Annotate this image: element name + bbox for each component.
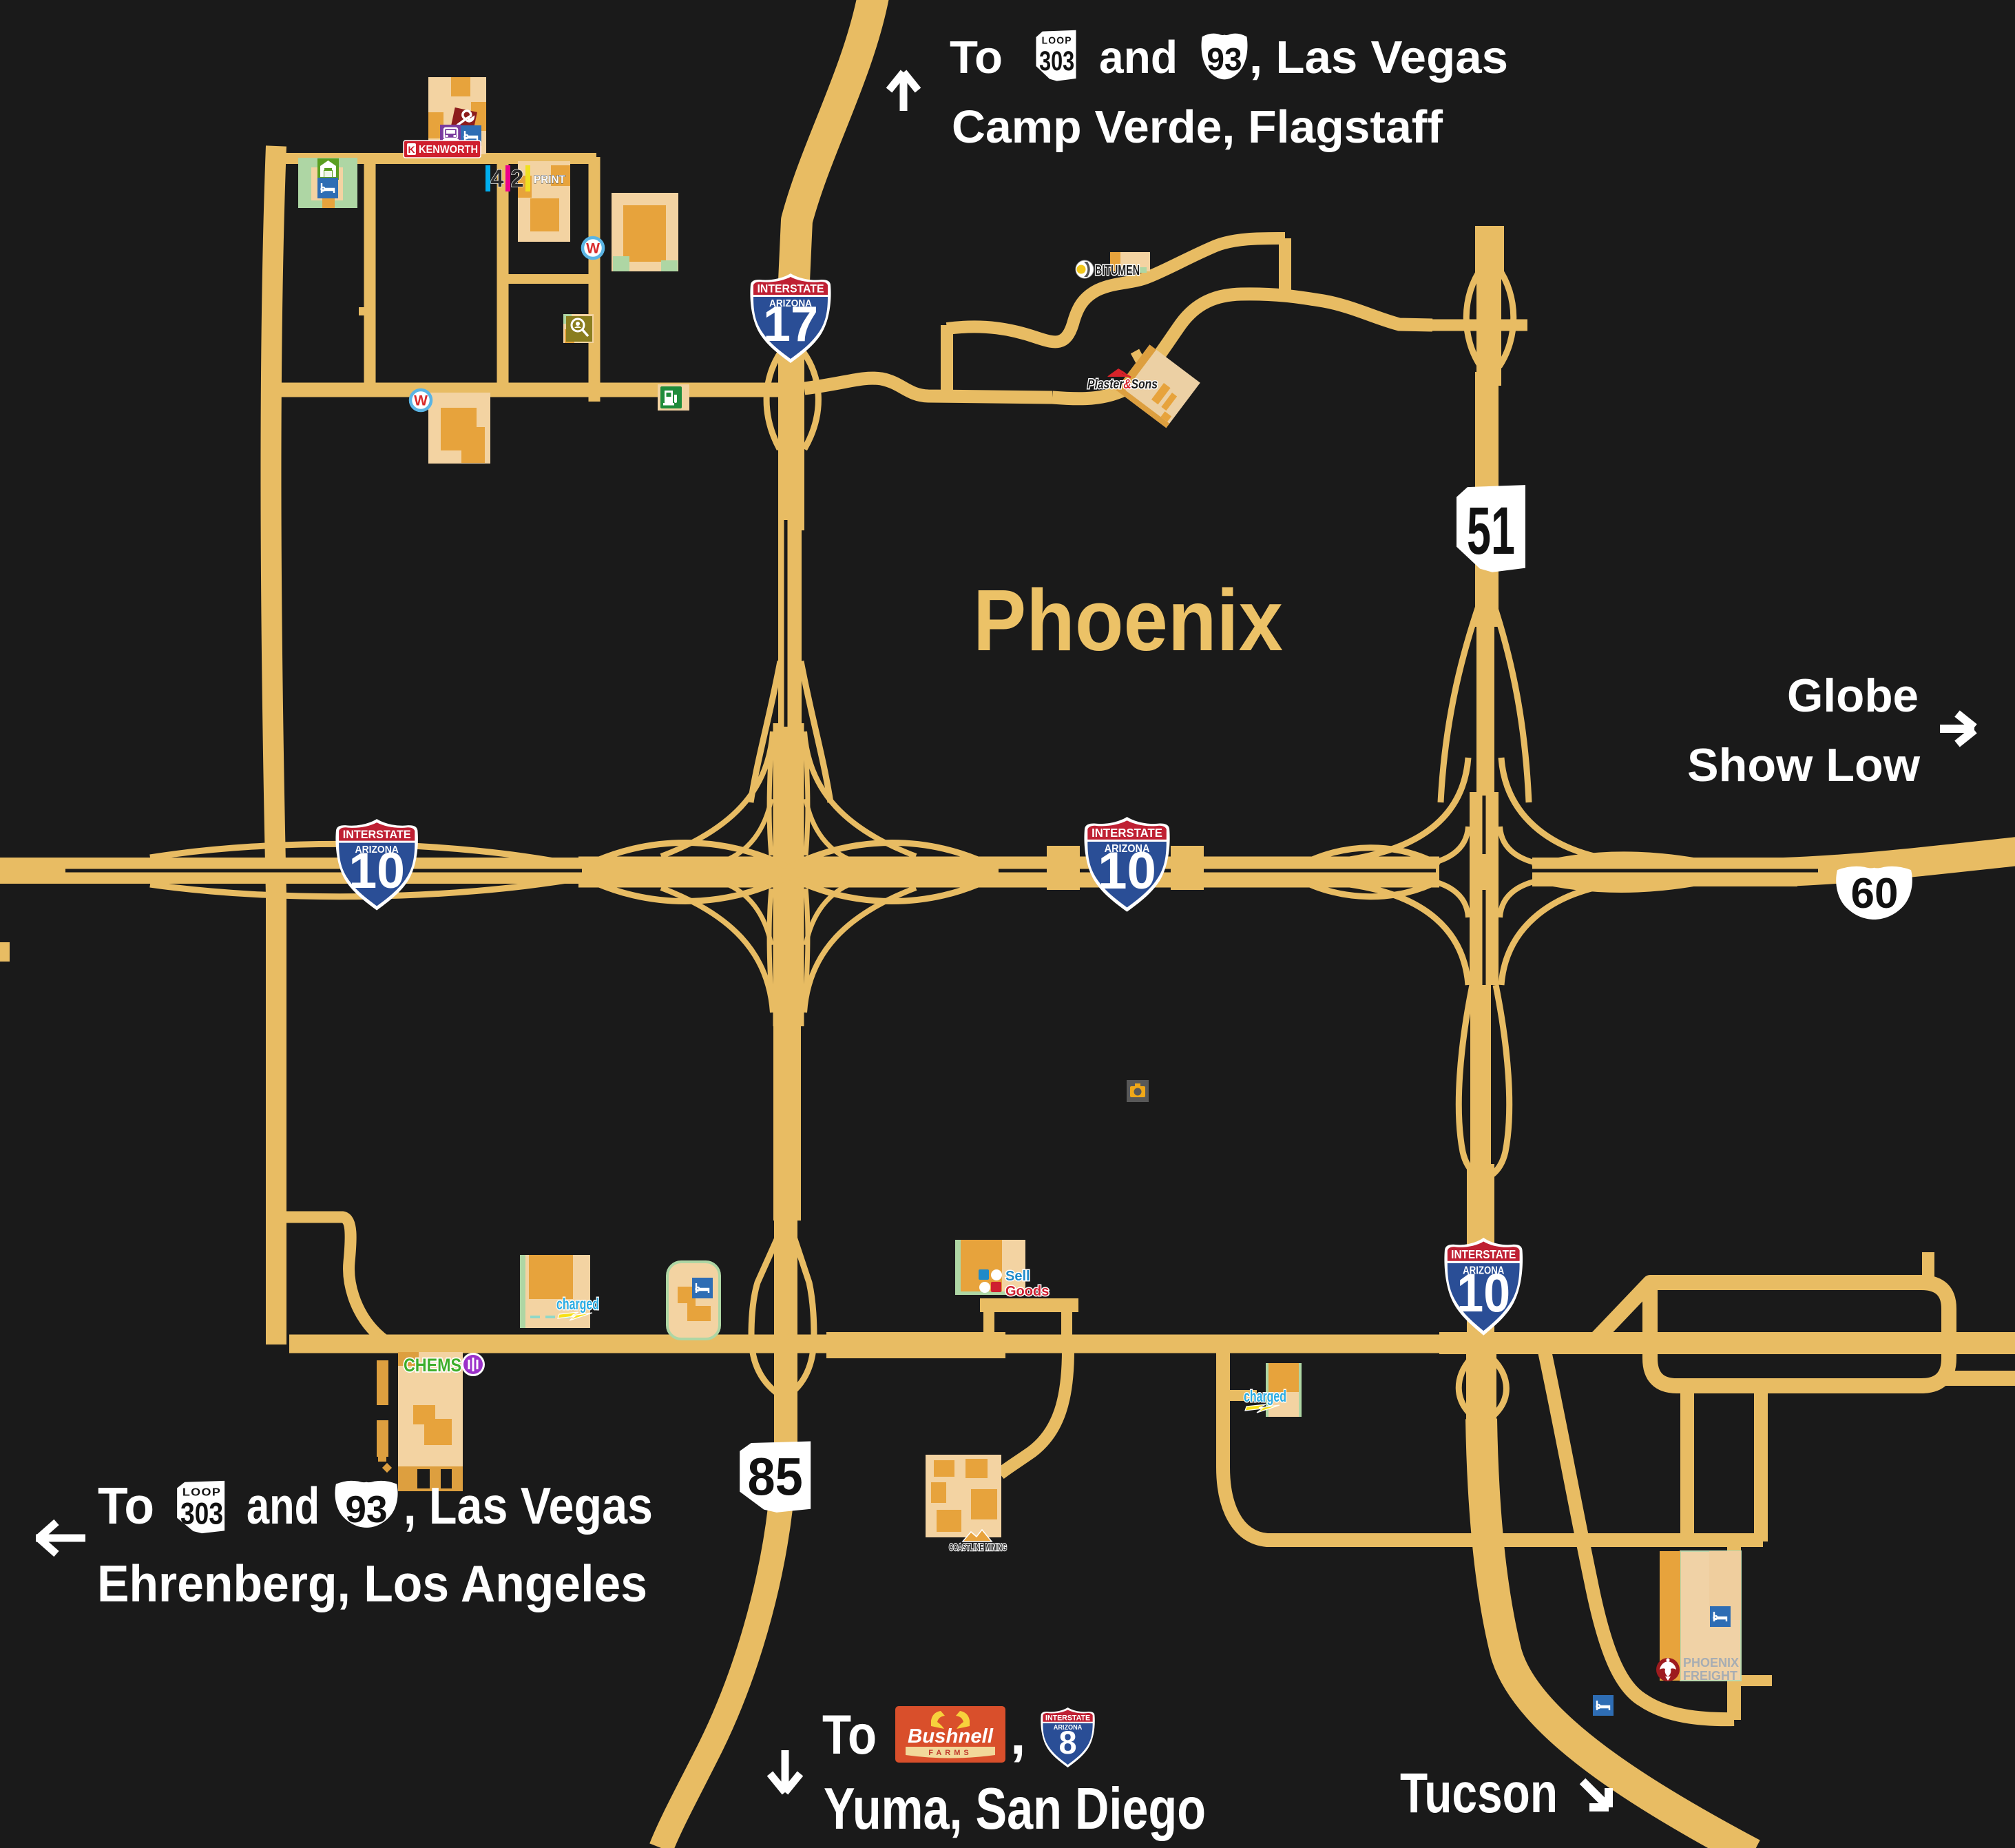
- svg-text:BITUMEN: BITUMEN: [1095, 263, 1140, 278]
- svg-text:Camp Verde, Flagstaff: Camp Verde, Flagstaff: [952, 101, 1443, 153]
- svg-text:10: 10: [1098, 842, 1156, 900]
- svg-text:To: To: [98, 1477, 154, 1535]
- svg-text:FARMS: FARMS: [928, 1749, 972, 1757]
- svg-text:K: K: [408, 144, 415, 155]
- svg-text:FREIGHT: FREIGHT: [1683, 1669, 1737, 1683]
- svg-text:85: 85: [748, 1448, 803, 1507]
- svg-text:, Las Vegas: , Las Vegas: [404, 1477, 653, 1535]
- svg-text:51: 51: [1467, 494, 1515, 569]
- svg-text:COASTLINE MINING: COASTLINE MINING: [949, 1541, 1007, 1553]
- svg-text:Plaster&Sons: Plaster&Sons: [1087, 377, 1158, 392]
- svg-text:charged: charged: [556, 1295, 599, 1313]
- svg-text:93: 93: [1207, 41, 1242, 77]
- svg-text:10: 10: [348, 842, 405, 899]
- svg-text:303: 303: [180, 1497, 223, 1531]
- svg-text:303: 303: [1039, 46, 1074, 76]
- svg-text:PRINT: PRINT: [534, 173, 566, 186]
- svg-text:To: To: [822, 1704, 877, 1766]
- svg-text:10: 10: [1457, 1263, 1510, 1323]
- svg-text:Show Low: Show Low: [1687, 739, 1921, 791]
- svg-text:and: and: [1099, 32, 1178, 83]
- svg-text:Globe: Globe: [1787, 669, 1919, 722]
- svg-text:and: and: [247, 1477, 320, 1535]
- svg-text:Ehrenberg, Los Angeles: Ehrenberg, Los Angeles: [97, 1555, 647, 1612]
- svg-text:Bushnell: Bushnell: [908, 1725, 994, 1747]
- svg-text:LOOP: LOOP: [1042, 35, 1072, 46]
- svg-text:PHOENIX: PHOENIX: [1683, 1656, 1739, 1670]
- svg-text:Phoenix: Phoenix: [973, 572, 1283, 669]
- svg-text:2: 2: [511, 165, 524, 192]
- svg-text:charged: charged: [1244, 1387, 1286, 1405]
- svg-text:Sell: Sell: [1005, 1269, 1030, 1284]
- svg-text:Goods: Goods: [1005, 1284, 1049, 1299]
- svg-text:, Las Vegas: , Las Vegas: [1249, 32, 1508, 83]
- svg-text:To: To: [950, 32, 1003, 83]
- svg-text:4: 4: [491, 165, 505, 192]
- svg-text:17: 17: [763, 297, 818, 352]
- svg-text:8: 8: [1058, 1725, 1076, 1761]
- svg-text:KENWORTH: KENWORTH: [419, 144, 478, 156]
- svg-text:CHEMS: CHEMS: [404, 1355, 461, 1375]
- svg-text:93: 93: [345, 1488, 387, 1530]
- svg-text:60: 60: [1851, 870, 1899, 917]
- svg-text:Tucson: Tucson: [1400, 1762, 1558, 1825]
- svg-text:Yuma, San Diego: Yuma, San Diego: [824, 1776, 1206, 1842]
- svg-text:,: ,: [1010, 1704, 1026, 1766]
